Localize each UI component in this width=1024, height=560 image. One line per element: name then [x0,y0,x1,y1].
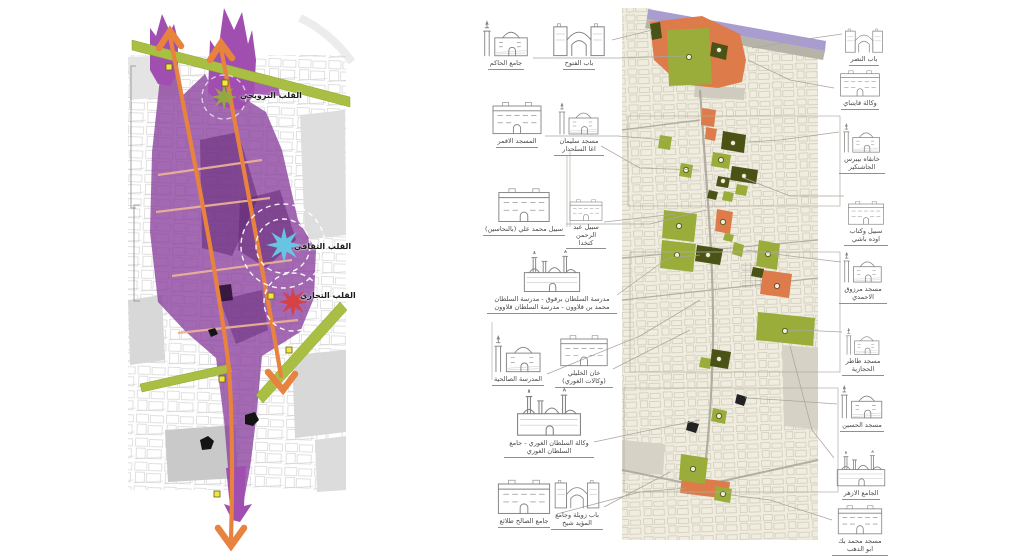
starburst-recreational-icon [211,84,237,110]
monument-sketch-icon [489,322,547,374]
label-cultural-heart: القلب الثقافي [294,242,351,251]
monument-label: سبيل عبد الرحمن كتخدا [566,223,606,249]
monument-label: مدرسة السلطان برقوق - مدرسة السلطان محمد… [487,295,617,314]
vignette-left-10: جامع الصالح طلائع [492,468,556,528]
vignette-left-6: مدرسة السلطان برقوق - مدرسة السلطان محمد… [487,250,617,314]
monument-label: جامع الحاكم [488,59,524,70]
monument-label: مسجد سليمان اغا السلحدار [554,137,604,156]
vignette-left-3: مسجد سليمان اغا السلحدار [554,78,604,156]
vignette-left-11: باب زويلة وجامع المؤيد شيخ [551,452,603,530]
vignette-left-9: وكالة السلطان الغوري - جامع السلطان الغو… [504,388,594,458]
monument-sketch-icon [555,318,613,368]
vignette-right-1: وكالة قايتباي [833,64,887,110]
vignette-left-8: خان الخليلي (وكالات الغوري) [555,318,613,388]
monument-sketch-icon [482,180,566,224]
monument-sketch-icon [833,64,887,98]
label-commercial-heart: القلب التجاري [300,291,356,300]
monument-sketch-icon [832,498,888,536]
vignette-right-6: مسجد الحسين [836,378,888,432]
vignette-left-5: سبيل عبد الرحمن كتخدا [566,158,606,249]
vignette-right-3: سبيل وكتاب اوده باشي [844,166,888,246]
vignette-right-8: مسجد محمد بك ابو الدهب [832,498,888,556]
monument-label: باب زويلة وجامع المؤيد شيخ [551,511,603,530]
vignette-left-2: المسجد الاقمر [487,84,547,148]
monument-sketch-icon [842,298,884,356]
monument-sketch-icon [478,12,534,58]
left-diagram-art [128,8,352,546]
monument-sketch-icon [834,430,888,488]
monument-label: المسجد الاقمر [496,137,539,148]
vignette-right-0: باب النصر [842,8,886,66]
monument-label: خان الخليلي (وكالات الغوري) [555,369,613,388]
monument-sketch-icon [566,158,606,222]
vignette-right-7: الجامع الازهر [834,430,888,500]
vignette-right-5: مسجد طاطر الحجازية [842,298,884,376]
monument-sketch-icon [492,468,556,516]
monument-sketch-icon [842,8,886,54]
monument-sketch-icon [504,388,594,438]
monument-sketch-icon [839,238,887,284]
monument-sketch-icon [839,106,885,154]
monument-sketch-icon [554,78,604,136]
vignette-left-4: سبيل محمد علي (بالنحاسين) [482,180,566,236]
monument-label: المدرسة الصالحية [492,375,544,386]
vignette-right-2: خانقاه بيبرس الجاشنكير [839,106,885,174]
monument-sketch-icon [487,250,617,294]
monument-label: باب الفتوح [563,59,596,70]
vignette-right-4: مسجد مرزوق الاحمدي [839,238,887,304]
vignette-left-0: جامع الحاكم [478,12,534,70]
vignette-left-7: المدرسة الصالحية [489,322,547,386]
label-recreational-heart: القلب الترويحي [240,91,302,100]
monument-sketch-icon [551,452,603,510]
vignette-left-1: باب الفتوح [538,16,620,70]
monument-label: جامع الصالح طلائع [498,517,551,528]
monument-label: سبيل محمد علي (بالنحاسين) [483,225,565,236]
urban-analysis-poster: القلب الترويحي القلب الثقافي القلب التجا… [0,0,1024,560]
monument-label: مسجد طاطر الحجازية [842,357,884,376]
monument-sketch-icon [487,84,547,136]
monument-sketch-icon [836,378,888,420]
monument-sketch-icon [844,166,888,226]
monument-sketch-icon [538,16,620,58]
monument-label: مسجد محمد بك ابو الدهب [832,537,888,556]
